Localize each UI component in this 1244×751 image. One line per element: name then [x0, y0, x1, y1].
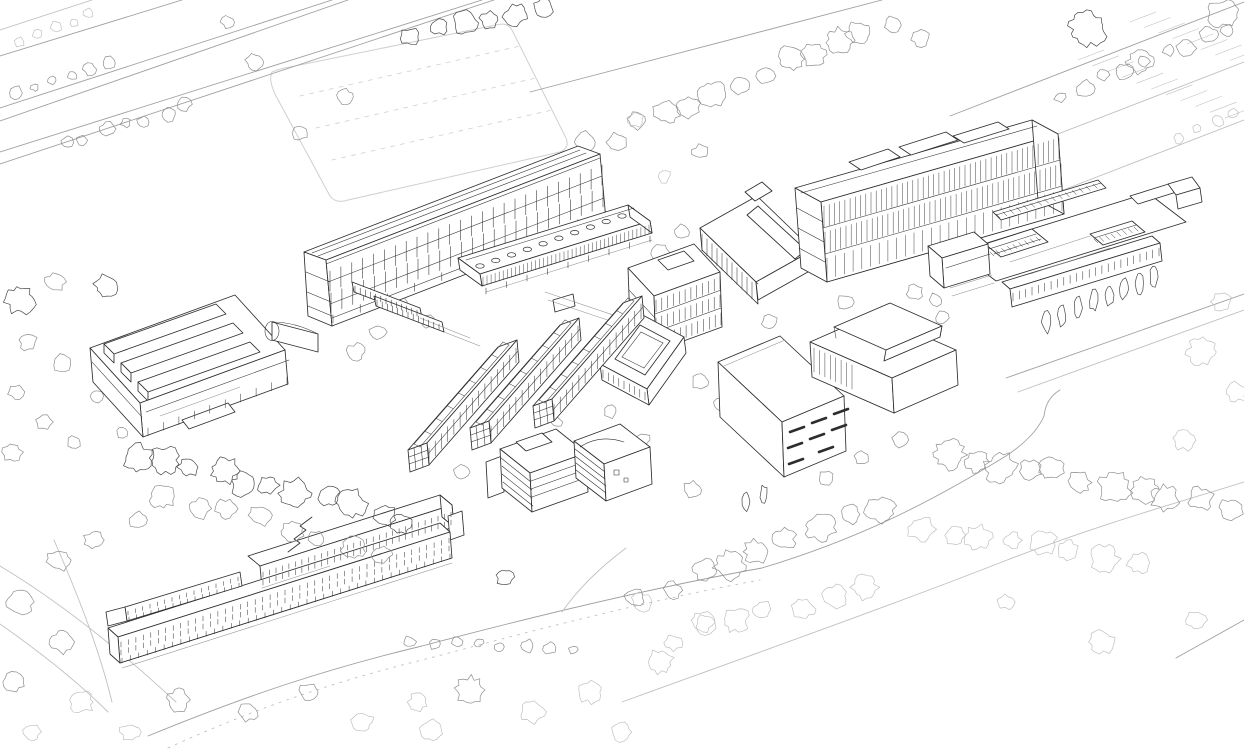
line-art-canvas: Aerial axonometric line drawing of a uni… — [0, 0, 1244, 751]
roof-skylight-dot — [618, 214, 626, 218]
roof-skylight-dot — [602, 219, 610, 223]
roof-skylight-dot — [570, 230, 578, 234]
dormitory-block — [106, 495, 464, 668]
buildings-layer — [90, 120, 1202, 668]
roof-skylight-dot — [507, 253, 515, 257]
roof-skylight-dot — [555, 236, 563, 240]
roof-skylight-dot — [492, 258, 500, 262]
field-hatch — [1078, 12, 1244, 118]
roof-skylight-dot — [539, 242, 547, 246]
roof-skylight-dot — [586, 225, 594, 229]
workshop-hall — [90, 295, 289, 437]
roof-skylight-dot — [476, 264, 484, 268]
roof-skylight-dot — [523, 247, 531, 251]
campus-axonometric-drawing: Aerial axonometric line drawing of a uni… — [0, 0, 1244, 751]
studio-block-west — [486, 429, 588, 512]
